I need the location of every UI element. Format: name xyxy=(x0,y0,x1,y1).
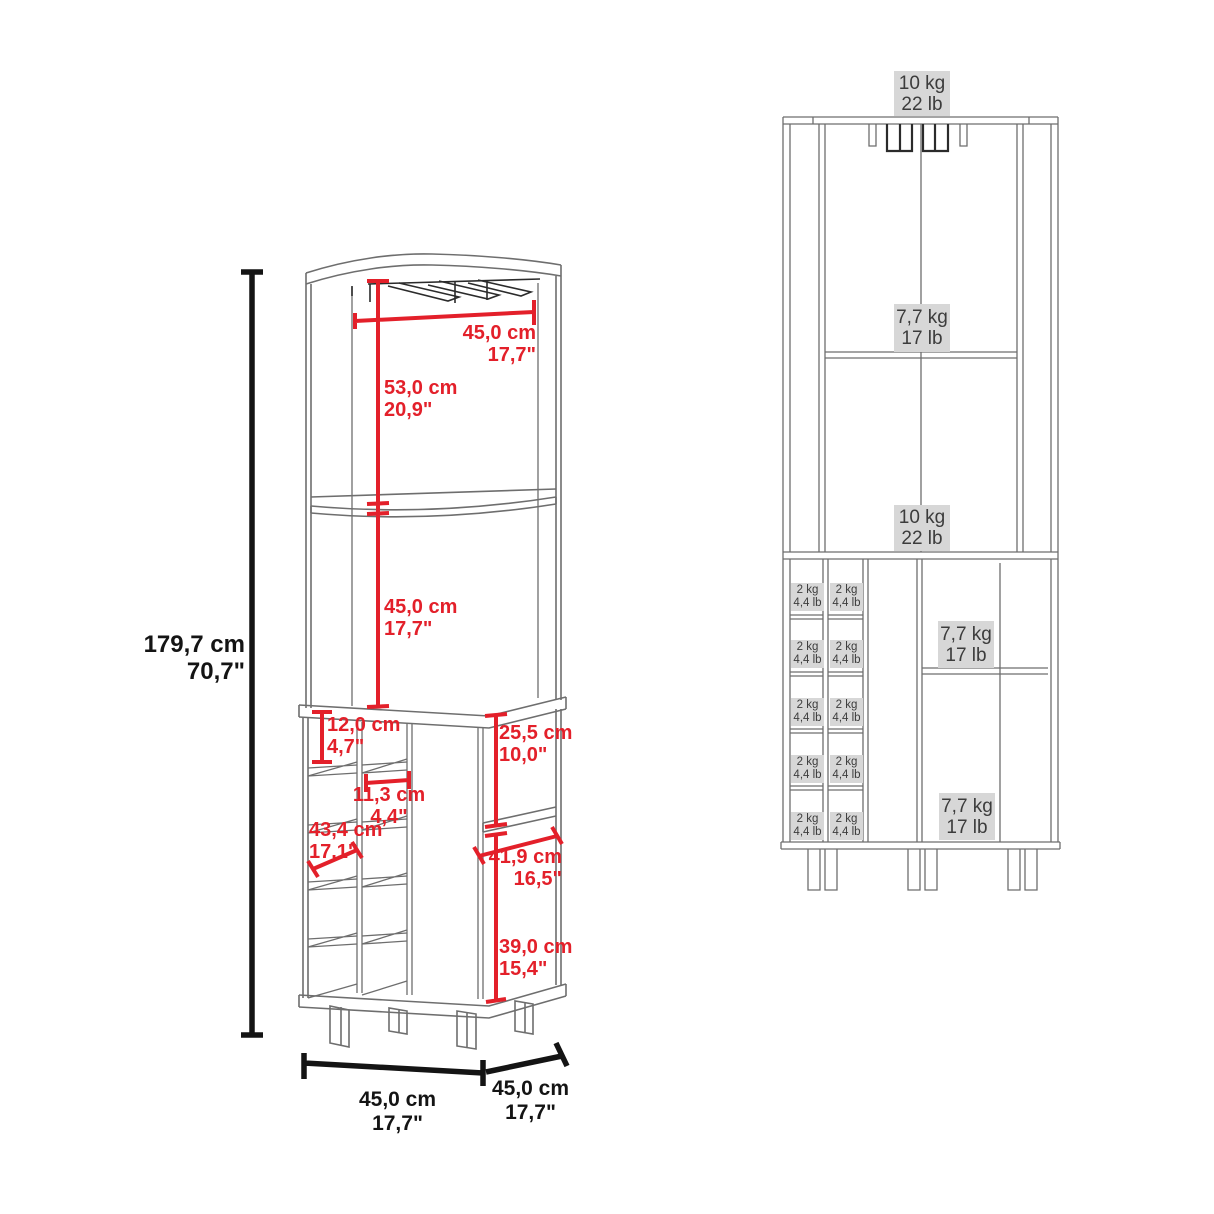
counter-surface-lb: 22 lb xyxy=(901,528,942,549)
cubby-capacity-badge: 2 kg 4,4 lb xyxy=(791,755,824,783)
cubby-column-in: 17,1" xyxy=(309,841,382,863)
side-shelf-width-in: 16,5" xyxy=(462,868,562,890)
counter-surface-kg: 10 kg xyxy=(899,507,945,528)
cubby-height-in: 4,7" xyxy=(327,736,400,758)
bottle-cubby-height-label: 12,0 cm 4,7" xyxy=(327,714,400,758)
cubby-kg: 2 kg xyxy=(797,756,819,769)
cubby-lb: 4,4 lb xyxy=(793,597,821,610)
cubby-kg: 2 kg xyxy=(836,699,858,712)
cubby-lb: 4,4 lb xyxy=(832,597,860,610)
cubby-capacity-badge: 2 kg 4,4 lb xyxy=(830,583,863,611)
overall-height-in: 70,7" xyxy=(90,658,245,685)
upper-shelf-lb: 17 lb xyxy=(901,328,942,349)
counter-surface-capacity-badge: 10 kg 22 lb xyxy=(894,505,950,551)
side-upper-opening-label: 25,5 cm 10,0" xyxy=(499,722,572,766)
upper-shelf-kg: 7,7 kg xyxy=(896,307,948,328)
cubby-lb: 4,4 lb xyxy=(793,826,821,839)
cubby-kg: 2 kg xyxy=(836,641,858,654)
cubby-lb: 4,4 lb xyxy=(832,826,860,839)
cubby-lb: 4,4 lb xyxy=(793,654,821,667)
cubby-column-height-label: 43,4 cm 17,1" xyxy=(309,819,382,863)
top-surface-lb: 22 lb xyxy=(901,94,942,115)
cubby-capacity-badge: 2 kg 4,4 lb xyxy=(830,640,863,668)
cabinet-shelf-upper-kg: 7,7 kg xyxy=(940,624,992,645)
cabinet-shelf-lower-kg: 7,7 kg xyxy=(941,796,993,817)
overall-height-label: 179,7 cm 70,7" xyxy=(90,631,245,685)
cubby-kg: 2 kg xyxy=(797,584,819,597)
top-surface-kg: 10 kg xyxy=(899,73,945,94)
side-shelf-width-cm: 41,9 cm xyxy=(462,846,562,868)
cubby-lb: 4,4 lb xyxy=(793,712,821,725)
cubby-kg: 2 kg xyxy=(836,756,858,769)
cubby-capacity-badge: 2 kg 4,4 lb xyxy=(791,812,824,840)
side-upper-cm: 25,5 cm xyxy=(499,722,572,744)
cubby-lb: 4,4 lb xyxy=(832,654,860,667)
cubby-capacity-badge: 2 kg 4,4 lb xyxy=(791,640,824,668)
cubby-width-cm: 11,3 cm xyxy=(352,784,426,806)
cubby-capacity-badge: 2 kg 4,4 lb xyxy=(791,698,824,726)
overall-height-cm: 179,7 cm xyxy=(90,631,245,658)
cubby-capacity-badge: 2 kg 4,4 lb xyxy=(830,812,863,840)
cubby-capacity-badge: 2 kg 4,4 lb xyxy=(830,755,863,783)
top-surface-capacity-badge: 10 kg 22 lb xyxy=(894,71,950,116)
cubby-kg: 2 kg xyxy=(797,641,819,654)
side-lower-opening-label: 39,0 cm 15,4" xyxy=(499,936,572,980)
side-lower-cm: 39,0 cm xyxy=(499,936,572,958)
cabinet-shelf-lower-capacity-badge: 7,7 kg 17 lb xyxy=(939,793,995,840)
cubby-kg: 2 kg xyxy=(797,699,819,712)
product-dimension-sheet: 179,7 cm 70,7" 45,0 cm 17,7" 53,0 cm 20,… xyxy=(0,0,1214,1214)
left-view-cabinet xyxy=(299,254,566,1049)
upper-shelf-capacity-badge: 7,7 kg 17 lb xyxy=(894,304,950,352)
cubby-lb: 4,4 lb xyxy=(793,769,821,782)
cubby-kg: 2 kg xyxy=(836,584,858,597)
middle-opening-height-label: 45,0 cm 17,7" xyxy=(384,596,457,640)
upper-opening-height-label: 53,0 cm 20,9" xyxy=(384,377,457,421)
cubby-lb: 4,4 lb xyxy=(832,769,860,782)
upper-opening-in: 20,9" xyxy=(384,399,457,421)
cubby-kg: 2 kg xyxy=(797,813,819,826)
cabinet-shelf-lower-lb: 17 lb xyxy=(946,817,987,838)
middle-opening-in: 17,7" xyxy=(384,618,457,640)
base-width-cm: 45,0 cm xyxy=(325,1088,470,1112)
cubby-column-cm: 43,4 cm xyxy=(309,819,382,841)
base-depth-in: 17,7" xyxy=(458,1101,603,1125)
upper-opening-cm: 53,0 cm xyxy=(384,377,457,399)
cubby-lb: 4,4 lb xyxy=(832,712,860,725)
top-width-cm: 45,0 cm xyxy=(436,322,536,344)
base-depth-cm: 45,0 cm xyxy=(458,1077,603,1101)
base-depth-label: 45,0 cm 17,7" xyxy=(458,1077,603,1125)
top-width-in: 17,7" xyxy=(436,344,536,366)
middle-opening-cm: 45,0 cm xyxy=(384,596,457,618)
cabinet-shelf-upper-capacity-badge: 7,7 kg 17 lb xyxy=(938,621,994,668)
cabinet-shelf-upper-lb: 17 lb xyxy=(945,645,986,666)
cubby-kg: 2 kg xyxy=(836,813,858,826)
cubby-height-cm: 12,0 cm xyxy=(327,714,400,736)
cubby-capacity-badge: 2 kg 4,4 lb xyxy=(830,698,863,726)
cabinet-line-art xyxy=(0,0,1214,1214)
side-lower-in: 15,4" xyxy=(499,958,572,980)
base-width-label: 45,0 cm 17,7" xyxy=(325,1088,470,1136)
top-width-label: 45,0 cm 17,7" xyxy=(436,322,536,366)
base-width-in: 17,7" xyxy=(325,1112,470,1136)
side-upper-in: 10,0" xyxy=(499,744,572,766)
side-shelf-width-label: 41,9 cm 16,5" xyxy=(462,846,562,890)
cubby-capacity-badge: 2 kg 4,4 lb xyxy=(791,583,824,611)
